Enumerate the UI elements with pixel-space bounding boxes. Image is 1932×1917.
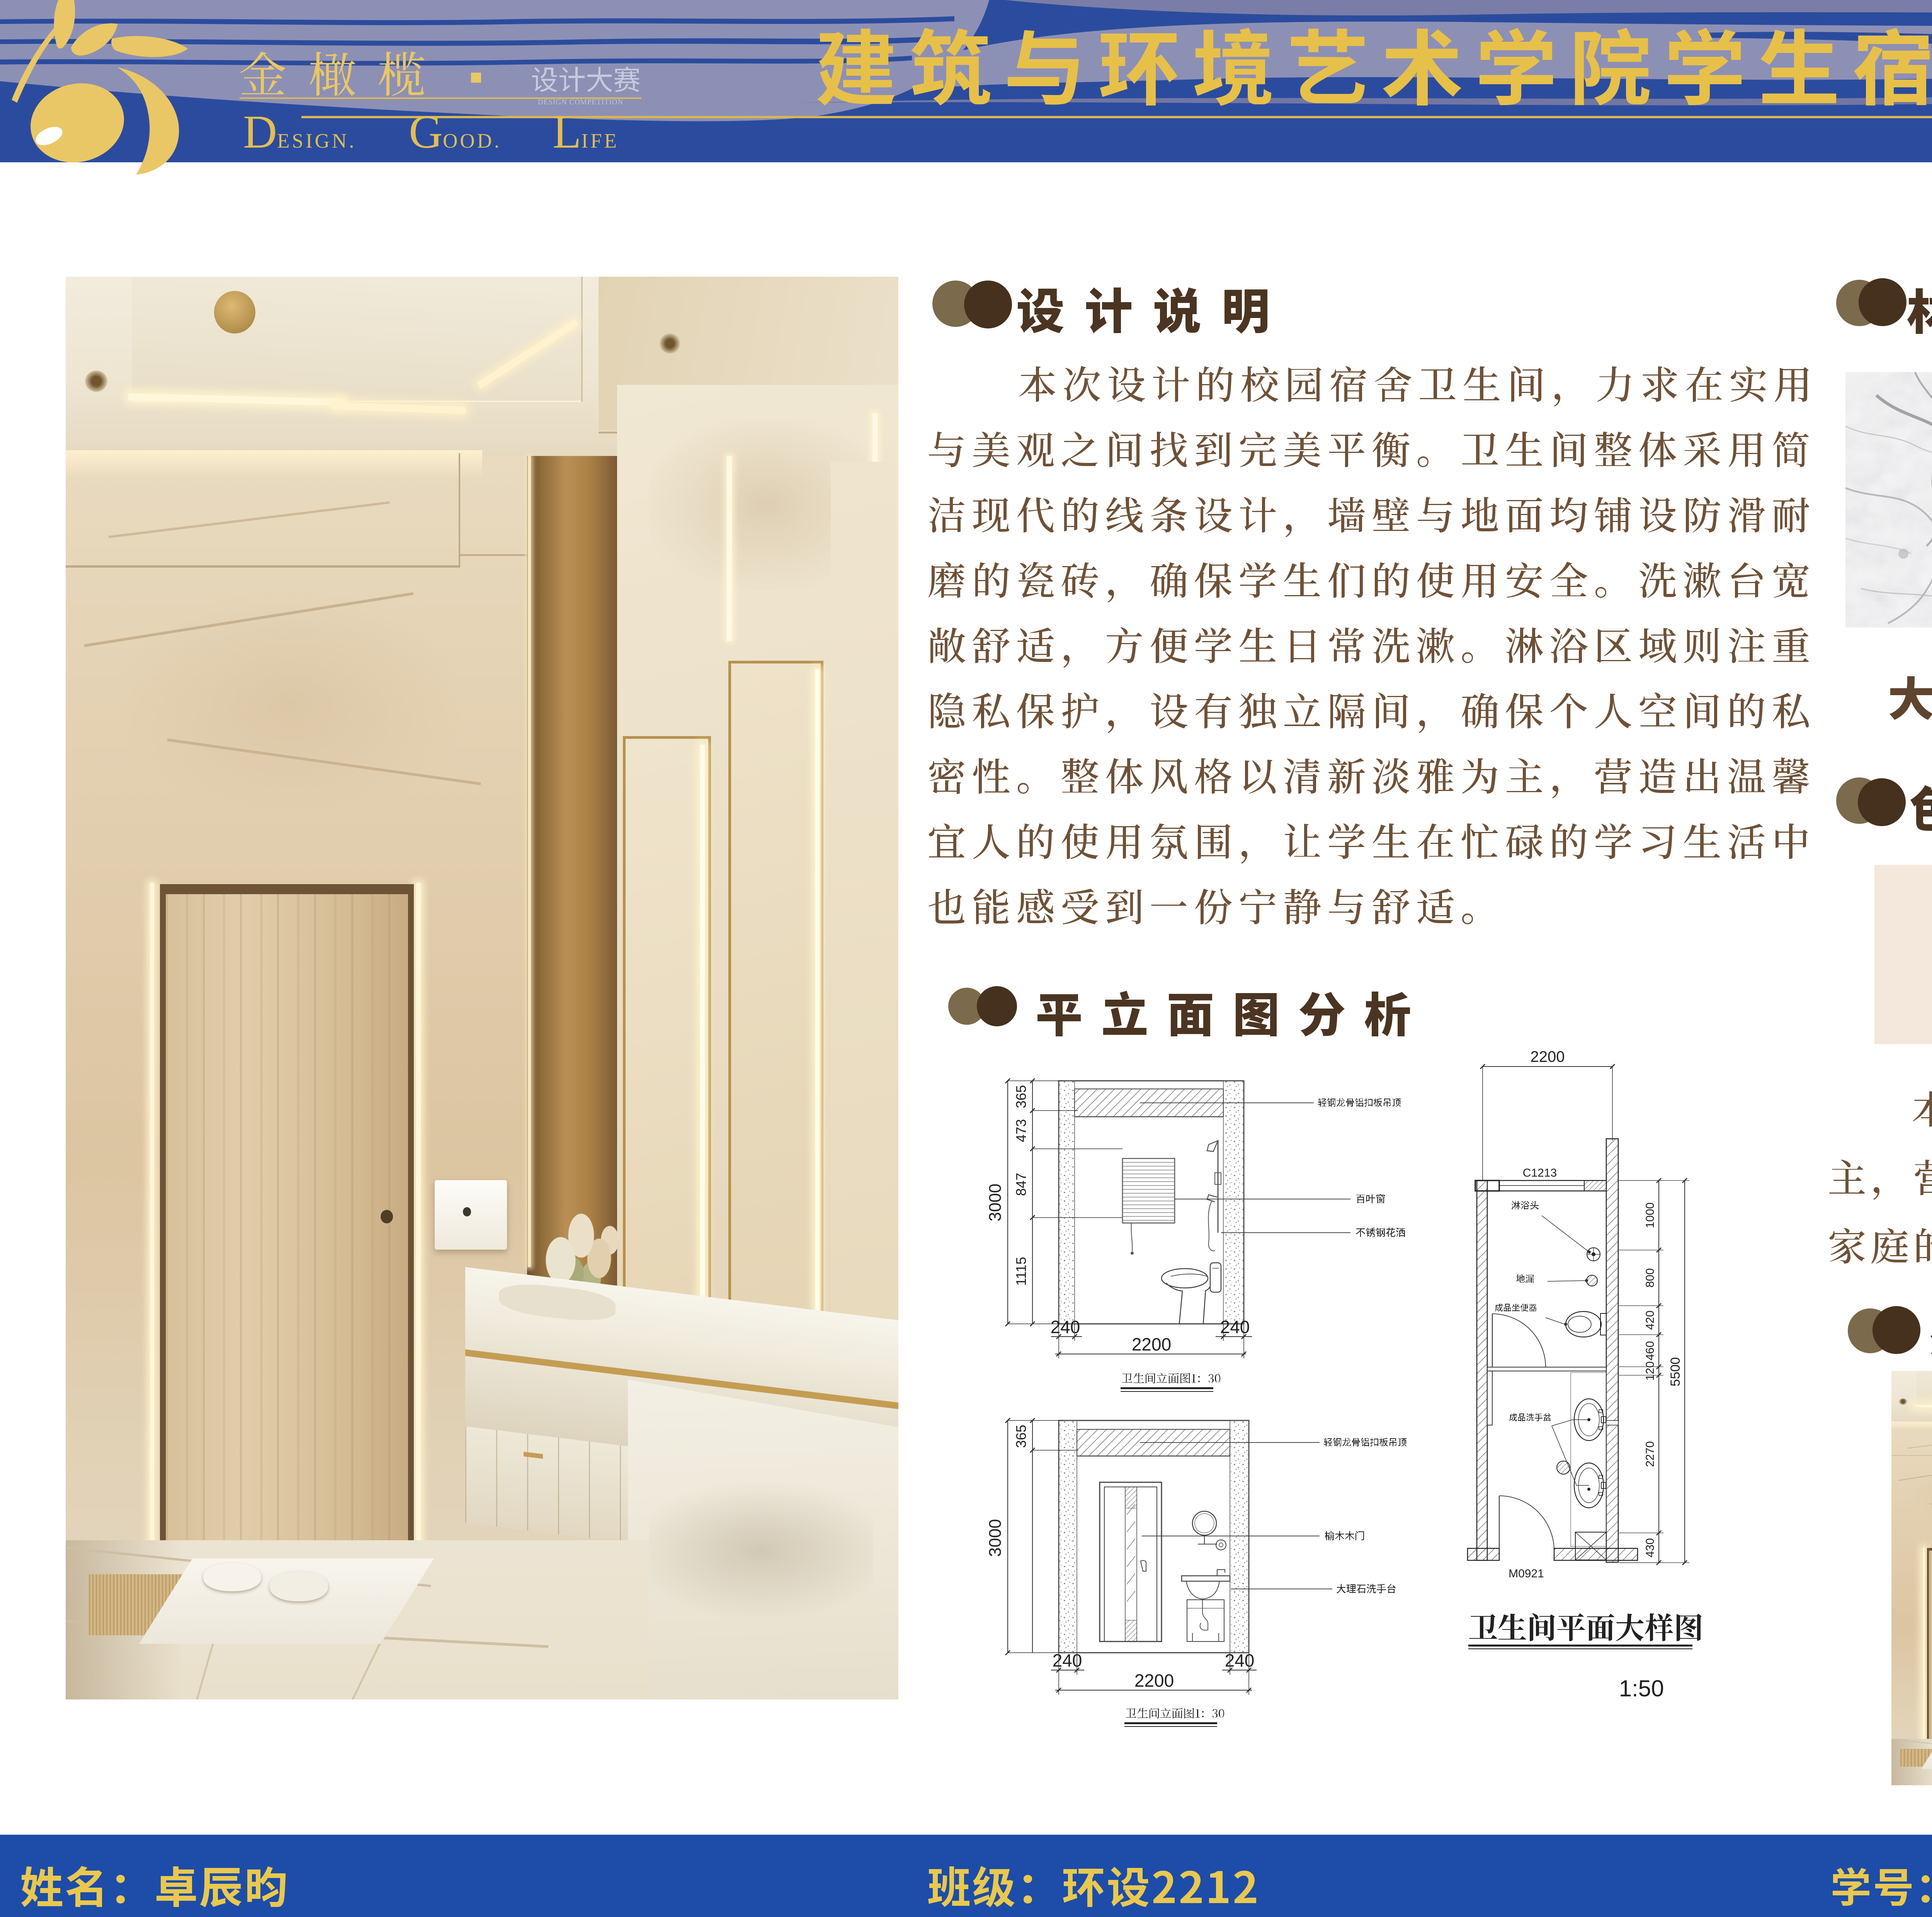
svg-text:C1213: C1213 [1523,1167,1557,1179]
svg-text:2200: 2200 [1531,1048,1565,1065]
svg-text:1:50: 1:50 [1619,1675,1664,1701]
svg-text:2200: 2200 [1134,1670,1174,1691]
svg-text:M0921: M0921 [1509,1567,1544,1580]
svg-text:1115: 1115 [1013,1257,1029,1286]
svg-text:2270: 2270 [1644,1441,1656,1467]
svg-text:240: 240 [1225,1650,1255,1670]
svg-text:430: 430 [1644,1538,1656,1557]
svg-text:2200: 2200 [1132,1334,1171,1354]
svg-text:3000: 3000 [986,1184,1005,1221]
svg-text:420: 420 [1644,1310,1656,1330]
svg-text:5500: 5500 [1668,1357,1683,1386]
svg-text:847: 847 [1013,1173,1029,1196]
svg-text:3000: 3000 [986,1519,1005,1557]
svg-text:120: 120 [1644,1361,1656,1381]
svg-text:240: 240 [1051,1317,1080,1337]
svg-text:365: 365 [1013,1085,1029,1108]
svg-text:460: 460 [1644,1341,1656,1360]
svg-text:240: 240 [1220,1317,1250,1337]
svg-text:1000: 1000 [1644,1203,1656,1228]
svg-text:800: 800 [1644,1268,1656,1288]
svg-text:473: 473 [1013,1119,1029,1142]
svg-text:240: 240 [1053,1650,1082,1670]
svg-text:365: 365 [1013,1425,1029,1448]
